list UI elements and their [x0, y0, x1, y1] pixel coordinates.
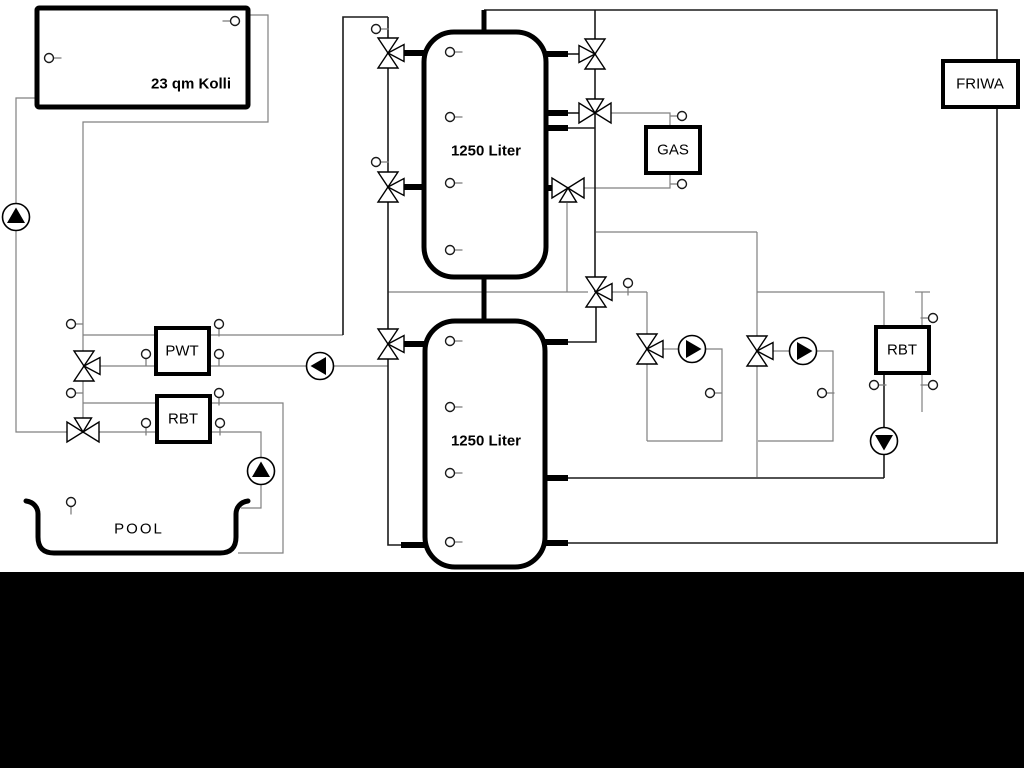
temperature-sensor-icon — [624, 279, 633, 288]
temperature-sensor-icon — [929, 381, 938, 390]
temperature-sensor-icon — [706, 389, 715, 398]
rbt-left-label: RBT — [168, 411, 198, 428]
temperature-sensor-icon — [446, 337, 455, 346]
temperature-sensor-icon — [446, 403, 455, 412]
temperature-sensor-icon — [142, 419, 151, 428]
temperature-sensor-icon — [446, 48, 455, 57]
collector-label: 23 qm Kolli — [151, 76, 231, 93]
temperature-sensor-icon — [67, 320, 76, 329]
temperature-sensor-icon — [216, 419, 225, 428]
temperature-sensor-icon — [446, 538, 455, 547]
temperature-sensor-icon — [45, 54, 54, 63]
pool-label: POOL — [114, 521, 164, 538]
tank2-label: 1250 Liter — [451, 433, 521, 450]
temperature-sensor-icon — [67, 498, 76, 507]
temperature-sensor-icon — [215, 389, 224, 398]
temperature-sensor-icon — [231, 17, 240, 26]
hydraulic-schematic-page: 23 qm Kolli1250 Liter1250 LiterGASFRIWAP… — [0, 0, 1024, 768]
temperature-sensor-icon — [446, 246, 455, 255]
pwt-label: PWT — [165, 343, 198, 360]
temperature-sensor-icon — [372, 25, 381, 34]
temperature-sensor-icon — [870, 381, 879, 390]
bottom-black-bar — [0, 572, 1024, 768]
temperature-sensor-icon — [142, 350, 151, 359]
temperature-sensor-icon — [372, 158, 381, 167]
temperature-sensor-icon — [446, 179, 455, 188]
temperature-sensor-icon — [818, 389, 827, 398]
temperature-sensor-icon — [678, 180, 687, 189]
temperature-sensor-icon — [67, 389, 76, 398]
gas-boiler-label: GAS — [657, 142, 689, 159]
schematic-canvas: 23 qm Kolli1250 Liter1250 LiterGASFRIWAP… — [0, 0, 1024, 768]
temperature-sensor-icon — [678, 112, 687, 121]
temperature-sensor-icon — [446, 469, 455, 478]
friwa-label: FRIWA — [956, 76, 1004, 93]
temperature-sensor-icon — [215, 350, 224, 359]
rbt-right-label: RBT — [887, 342, 917, 359]
temperature-sensor-icon — [446, 113, 455, 122]
temperature-sensor-icon — [929, 314, 938, 323]
temperature-sensor-icon — [215, 320, 224, 329]
tank1-label: 1250 Liter — [451, 143, 521, 160]
